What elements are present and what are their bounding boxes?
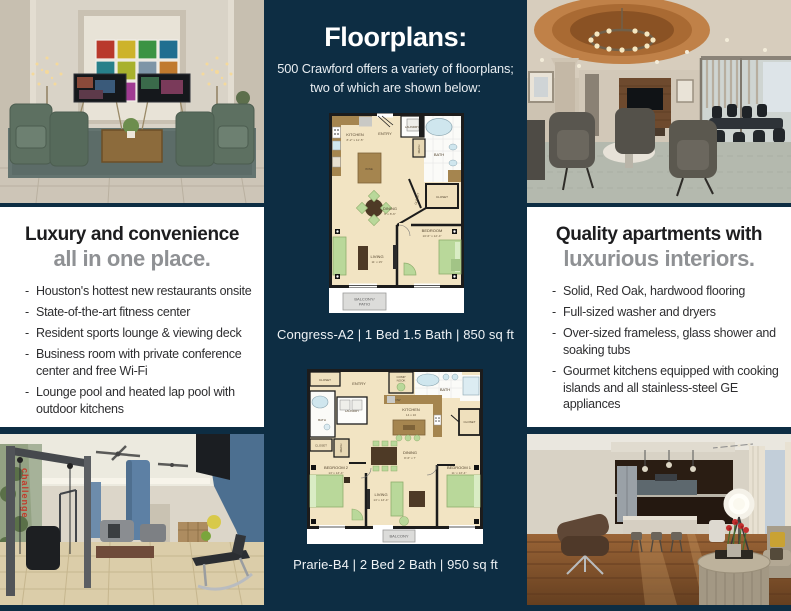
right-panel-subheading: luxurious interiors. xyxy=(531,247,787,270)
gym-photo: challenge xyxy=(0,434,264,605)
divider-strip xyxy=(0,427,264,434)
gym-photo-illustration: challenge xyxy=(0,434,264,605)
divider-strip xyxy=(527,427,791,434)
room-label: DINING xyxy=(403,450,417,455)
room-label: BEDROOM 2 xyxy=(324,465,349,470)
apartment-photo-illustration xyxy=(527,434,791,605)
apartment-interior-photo xyxy=(527,434,791,605)
bullet-item: Over-sized frameless, glass shower and s… xyxy=(552,325,785,358)
bullet-item: Resident sports lounge & viewing deck xyxy=(25,325,258,342)
kitchen-cabinets xyxy=(615,460,733,524)
divider-strip xyxy=(527,605,791,611)
room-dim: 11' x 13'-4" xyxy=(452,471,467,475)
bullet-item: Lounge pool and heated lap pool with out… xyxy=(25,384,258,417)
left-panel-bullet-list: Houston's hottest new restaurants onsite… xyxy=(0,283,264,417)
room-label: BATH xyxy=(318,418,326,422)
right-panel-heading: Quality apartments with xyxy=(531,225,787,245)
bullet-item: Solid, Red Oak, hardwood flooring xyxy=(552,283,785,300)
room-label: CLOSET xyxy=(315,444,327,448)
room-label: BEDROOM xyxy=(422,228,443,233)
floorplan1-caption: Congress-A2 | 1 Bed 1.5 Bath | 850 sq ft xyxy=(264,327,527,342)
room-label: KITCHEN xyxy=(346,132,364,137)
room-label: DINING xyxy=(383,206,397,211)
floorplan-prarie-b4-drawing: CLOSET ENTRY COMP NOOK BATH LAUNDRY DW K… xyxy=(307,369,483,544)
room-label: MECH xyxy=(339,444,343,453)
bullet-item: Business room with private conference ce… xyxy=(25,346,258,379)
room-dim: 13' x 13'-4" xyxy=(373,498,388,502)
floorplan-congress-a2: KITCHEN 8'-2" x 11'-5" ENTRY LAUNDRY MEC… xyxy=(329,113,464,313)
room-label: ENTRY xyxy=(352,381,366,386)
room-label: WINE xyxy=(365,167,373,171)
room-label: BATH xyxy=(440,387,450,392)
room-label: BALCONY xyxy=(389,534,408,539)
left-panel-heading: Luxury and convenience xyxy=(4,225,260,245)
bullet-item: Gourmet kitchens equipped with cooking i… xyxy=(552,363,785,413)
center-column: Floorplans: 500 Crawford offers a variet… xyxy=(264,0,527,611)
room-dim: 13' x 13'-4" xyxy=(328,471,343,475)
room-label: CLOSET xyxy=(319,378,331,382)
room-dim: 8'-2" x 11'-5" xyxy=(346,138,363,142)
floorplans-title: Floorplans: xyxy=(264,22,527,53)
lobby-photo-illustration xyxy=(0,0,264,203)
room-label: LIVING xyxy=(370,254,383,259)
brochure-page: Luxury and convenience all in one place.… xyxy=(0,0,791,611)
room-label: PATIO xyxy=(359,302,370,307)
right-column: Quality apartments with luxurious interi… xyxy=(527,0,791,611)
room-dim: 10'-6" x 12'-4" xyxy=(422,234,441,238)
room-label: LAUNDRY xyxy=(345,409,359,413)
floorplan-congress-a2-drawing: KITCHEN 8'-2" x 11'-5" ENTRY LAUNDRY MEC… xyxy=(329,113,464,313)
bullet-item: Full-sized washer and dryers xyxy=(552,304,785,321)
divider-strip xyxy=(0,605,264,611)
room-label: LIVING xyxy=(374,492,387,497)
left-panel-subheading: all in one place. xyxy=(4,247,260,270)
room-label: CLOSET xyxy=(436,195,448,199)
business-room-photo-illustration xyxy=(527,0,791,203)
floorplan2-caption: Prarie-B4 | 2 Bed 2 Bath | 950 sq ft xyxy=(264,557,527,572)
floorplan-prarie-b4: CLOSET ENTRY COMP NOOK BATH LAUNDRY DW K… xyxy=(307,369,483,544)
room-dim: 14 x 10 xyxy=(406,413,416,417)
subtitle-line: 500 Crawford offers a variety of floorpl… xyxy=(264,60,527,79)
room-label: BATH xyxy=(434,152,444,157)
gym-tv xyxy=(196,434,230,480)
subtitle-line: two of which are shown below: xyxy=(264,79,527,98)
room-label: LAUNDRY xyxy=(405,125,419,129)
lobby-photo xyxy=(0,0,264,203)
bullet-item: State-of-the-art fitness center xyxy=(25,304,258,321)
left-column: Luxury and convenience all in one place.… xyxy=(0,0,264,611)
right-panel: Quality apartments with luxurious interi… xyxy=(527,207,791,427)
room-label: NOOK xyxy=(397,379,406,383)
business-room-photo xyxy=(527,0,791,203)
room-dim: 11' x 15' xyxy=(371,260,383,264)
room-label: CLOSET xyxy=(463,420,475,424)
trunk-coffee-table xyxy=(698,550,770,605)
room-dim: 8'-6" x 7' xyxy=(404,456,416,460)
room-label: ENTRY xyxy=(378,131,392,136)
left-panel: Luxury and convenience all in one place.… xyxy=(0,207,264,427)
room-label: DW xyxy=(396,398,401,402)
room-dim: 6' x 8'-6" xyxy=(384,212,396,216)
room-label: BEDROOM 1 xyxy=(447,465,472,470)
right-panel-bullet-list: Solid, Red Oak, hardwood flooring Full-s… xyxy=(527,283,791,413)
room-label: KITCHEN xyxy=(402,407,420,412)
gym-signage-text: challenge xyxy=(20,468,30,519)
room-label: MECH xyxy=(417,145,421,154)
bullet-item: Houston's hottest new restaurants onsite xyxy=(25,283,258,300)
floorplans-subtitle: 500 Crawford offers a variety of floorpl… xyxy=(264,60,527,97)
